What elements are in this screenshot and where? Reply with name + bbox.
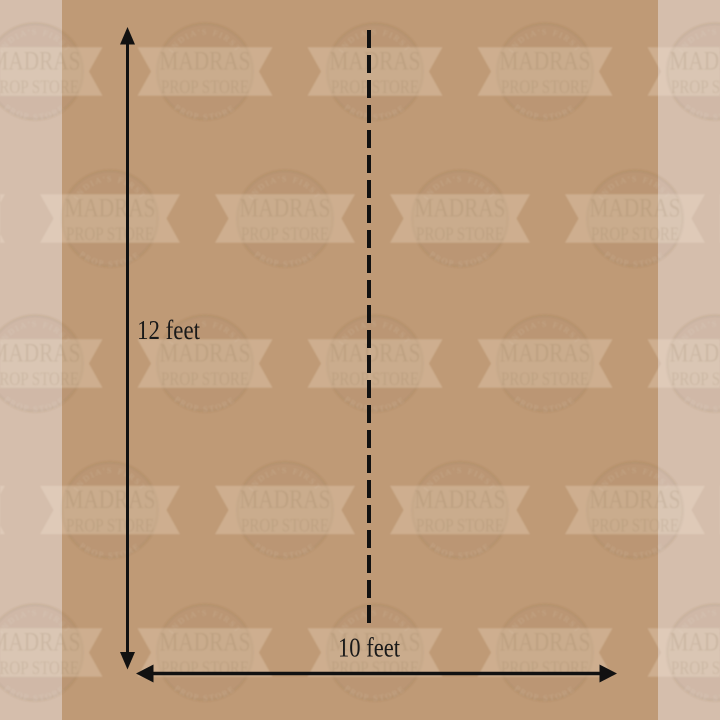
svg-text:10 feet: 10 feet [338,633,400,663]
svg-text:12 feet: 12 feet [137,315,200,345]
